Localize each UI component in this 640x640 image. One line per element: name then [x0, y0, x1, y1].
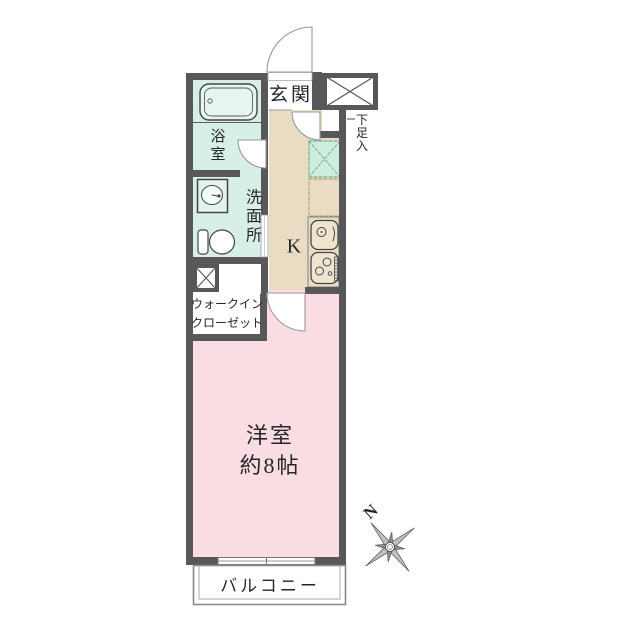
- washroom-label: 洗面所: [239, 189, 263, 246]
- wall-shoe-niche-stub: [320, 131, 346, 138]
- entrance-door-arc: [267, 27, 312, 72]
- bathtub-icon: [193, 84, 261, 123]
- toilet-icon: [198, 230, 235, 254]
- shoe-cabinet-label: 下足入: [354, 114, 371, 153]
- wall-kitchen-room-right: [305, 287, 346, 294]
- washbasin-icon: [198, 180, 228, 213]
- walk-in-closet-label: ウォークイン クローゼット: [191, 295, 263, 333]
- wall-top: [186, 73, 268, 80]
- wall-kitchen-room-left: [261, 287, 267, 294]
- kitchen-label: K: [287, 236, 301, 259]
- stove-icon: [311, 253, 339, 284]
- shoe-niche-floor: [322, 108, 339, 133]
- walk-in-closet-label-line2: クローゼット: [191, 314, 263, 333]
- genkan-label: 玄関: [269, 80, 313, 107]
- compass-rose-icon: [366, 523, 415, 572]
- pipe-space-box: [195, 266, 217, 290]
- floorplan-drawing: [0, 0, 640, 640]
- western-room-name: 洋室: [239, 421, 300, 451]
- wall-washroom-bottom: [186, 257, 261, 264]
- wall-wic-bottom: [186, 334, 267, 341]
- wall-right: [339, 108, 346, 565]
- walk-in-closet-label-line1: ウォークイン: [191, 295, 263, 314]
- western-room-label: 洋室 約8帖: [239, 421, 300, 481]
- wall-bottom-right: [315, 557, 346, 565]
- wall-bottom-left: [186, 557, 218, 565]
- bathroom-label: 浴室: [207, 128, 228, 164]
- refrigerator-space: [309, 141, 340, 177]
- window: [218, 558, 315, 565]
- kitchen-sink-icon: [311, 221, 338, 250]
- floorplan-page: 玄関 浴室 洗面所 ウォークイン クローゼット K 洋室 約8帖 バルコニー 下…: [0, 0, 640, 640]
- wall-entrance-pillar: [312, 72, 322, 110]
- wall-bathroom-bottom: [186, 170, 240, 177]
- balcony-label: バルコニー: [220, 572, 320, 597]
- shoe-cabinet-box: [325, 76, 376, 108]
- western-room-size: 約8帖: [239, 451, 300, 481]
